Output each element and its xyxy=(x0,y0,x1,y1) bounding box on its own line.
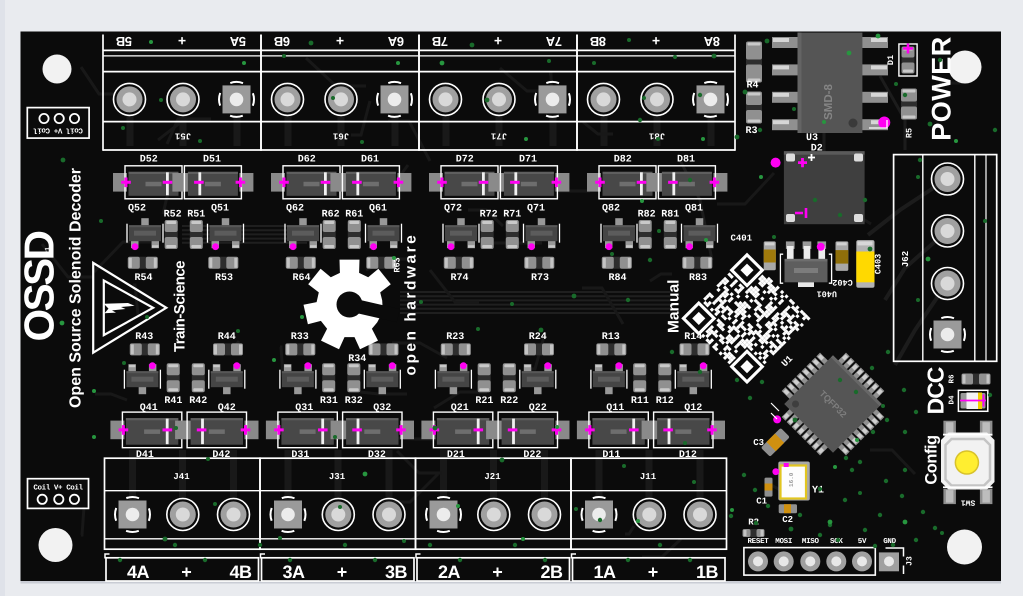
svg-text:J31: J31 xyxy=(329,472,346,482)
svg-text:Manual: Manual xyxy=(666,280,683,333)
svg-text:D82: D82 xyxy=(614,155,632,166)
svg-text:+: + xyxy=(178,33,186,49)
svg-text:R74: R74 xyxy=(450,273,468,284)
svg-text:+: + xyxy=(494,33,502,49)
svg-text:R6: R6 xyxy=(947,374,956,384)
svg-text:Q72: Q72 xyxy=(444,204,462,215)
svg-text:Open Source Solenoid Decoder: Open Source Solenoid Decoder xyxy=(68,168,85,408)
svg-text:Y1: Y1 xyxy=(812,486,824,497)
svg-text:R61: R61 xyxy=(345,210,363,221)
svg-text:1B: 1B xyxy=(696,562,719,582)
svg-text:16.0: 16.0 xyxy=(788,472,795,487)
svg-text:R72: R72 xyxy=(480,210,498,221)
svg-text:5A: 5A xyxy=(229,34,246,49)
svg-text:R24: R24 xyxy=(529,332,547,343)
svg-text:D31: D31 xyxy=(291,450,309,461)
svg-text:2B: 2B xyxy=(540,562,563,582)
svg-text:D4: D4 xyxy=(949,395,957,405)
svg-text:Coil V+ Coil: Coil V+ Coil xyxy=(33,126,83,135)
svg-text:5B: 5B xyxy=(116,34,132,49)
svg-text:R71: R71 xyxy=(503,210,521,221)
svg-text:J21: J21 xyxy=(484,472,501,482)
svg-text:6B: 6B xyxy=(274,34,290,49)
svg-text:Q62: Q62 xyxy=(286,204,304,215)
svg-text:OSSD: OSSD xyxy=(16,231,63,341)
svg-text:R42: R42 xyxy=(189,396,207,407)
svg-text:R52: R52 xyxy=(164,210,182,221)
svg-text:R31: R31 xyxy=(320,396,338,407)
svg-text:J11: J11 xyxy=(640,472,657,482)
svg-text:R5: R5 xyxy=(905,128,915,138)
svg-text:R11: R11 xyxy=(631,396,649,407)
svg-text:D21: D21 xyxy=(447,450,465,461)
svg-text:SW1: SW1 xyxy=(961,498,976,507)
svg-text:5V: 5V xyxy=(858,538,867,546)
svg-text:R81: R81 xyxy=(661,210,679,221)
svg-text:C1: C1 xyxy=(756,497,767,507)
svg-text:SMD-8: SMD-8 xyxy=(823,84,835,120)
svg-text:D2: D2 xyxy=(811,144,823,155)
svg-text:U401: U401 xyxy=(817,289,837,299)
svg-text:D61: D61 xyxy=(361,155,379,166)
svg-text:R64: R64 xyxy=(292,273,310,284)
svg-text:R21: R21 xyxy=(475,396,493,407)
svg-text:R53: R53 xyxy=(215,273,233,284)
svg-text:D51: D51 xyxy=(203,155,221,166)
svg-text:+: + xyxy=(652,33,660,49)
svg-text:D12: D12 xyxy=(679,450,697,461)
svg-text:J41: J41 xyxy=(173,472,190,482)
svg-text:D11: D11 xyxy=(602,450,620,461)
svg-text:R73: R73 xyxy=(531,273,549,284)
svg-text:C2: C2 xyxy=(782,515,793,525)
svg-text:U3: U3 xyxy=(806,133,818,144)
svg-text:MOSI: MOSI xyxy=(775,537,792,546)
svg-text:8B: 8B xyxy=(590,34,606,49)
svg-text:7B: 7B xyxy=(432,34,448,49)
svg-text:D22: D22 xyxy=(523,450,541,461)
svg-text:Q51: Q51 xyxy=(211,204,229,215)
svg-text:R4: R4 xyxy=(746,81,758,92)
svg-text:Train-Science: Train-Science xyxy=(172,261,189,352)
svg-text:3B: 3B xyxy=(385,562,408,582)
svg-text:D32: D32 xyxy=(368,450,386,461)
svg-text:+: + xyxy=(337,562,348,582)
svg-text:R62: R62 xyxy=(322,210,340,221)
svg-text:Q61: Q61 xyxy=(369,204,387,215)
svg-text:R13: R13 xyxy=(602,332,620,343)
svg-text:R41: R41 xyxy=(164,396,182,407)
svg-text:D52: D52 xyxy=(140,155,158,166)
svg-text:MISO: MISO xyxy=(802,537,820,546)
svg-text:4B: 4B xyxy=(229,562,252,582)
svg-text:R1: R1 xyxy=(45,247,53,255)
svg-text:D62: D62 xyxy=(298,155,316,166)
svg-text:C3: C3 xyxy=(753,438,764,448)
svg-text:R12: R12 xyxy=(656,396,674,407)
svg-text:2A: 2A xyxy=(438,562,461,582)
svg-text:Coil V+ Coil: Coil V+ Coil xyxy=(33,484,83,493)
svg-text:Config: Config xyxy=(923,435,941,484)
svg-text:C402: C402 xyxy=(832,277,852,287)
svg-text:+: + xyxy=(648,562,659,582)
svg-text:R83: R83 xyxy=(689,273,707,284)
svg-text:4A: 4A xyxy=(127,562,150,582)
svg-text:6A: 6A xyxy=(387,34,404,49)
svg-text:D1: D1 xyxy=(886,55,896,65)
svg-text:Q82: Q82 xyxy=(602,204,620,215)
svg-text:DCC: DCC xyxy=(923,367,949,414)
svg-text:R82: R82 xyxy=(638,210,656,221)
svg-text:J61: J61 xyxy=(332,131,349,141)
svg-text:R3: R3 xyxy=(745,126,757,137)
svg-text:1A: 1A xyxy=(593,562,616,582)
svg-text:J62: J62 xyxy=(901,251,911,267)
svg-text:D41: D41 xyxy=(136,450,154,461)
svg-text:C403: C403 xyxy=(874,254,884,274)
svg-text:D42: D42 xyxy=(212,450,230,461)
svg-text:J71: J71 xyxy=(490,131,507,141)
svg-text:7A: 7A xyxy=(545,34,562,49)
svg-text:R22: R22 xyxy=(500,396,518,407)
svg-text:+: + xyxy=(336,33,344,49)
svg-text:D72: D72 xyxy=(456,155,474,166)
svg-text:RESET: RESET xyxy=(747,537,769,546)
svg-text:C401: C401 xyxy=(730,234,752,244)
svg-text:J3: J3 xyxy=(906,556,915,566)
svg-text:R44: R44 xyxy=(218,332,236,343)
svg-text:R51: R51 xyxy=(187,210,205,221)
svg-text:R32: R32 xyxy=(345,396,363,407)
svg-text:8A: 8A xyxy=(703,34,720,49)
svg-text:J51: J51 xyxy=(174,131,191,141)
svg-text:R23: R23 xyxy=(446,332,464,343)
svg-text:3A: 3A xyxy=(282,562,305,582)
svg-text:D81: D81 xyxy=(677,155,695,166)
svg-text:D71: D71 xyxy=(519,155,537,166)
svg-text:Q52: Q52 xyxy=(128,204,146,215)
svg-text:R34: R34 xyxy=(348,354,366,365)
svg-text:Q81: Q81 xyxy=(685,204,703,215)
svg-text:Q71: Q71 xyxy=(527,204,545,215)
svg-text:R33: R33 xyxy=(291,332,309,343)
svg-text:+: + xyxy=(181,562,192,582)
svg-text:R54: R54 xyxy=(134,273,152,284)
svg-text:R84: R84 xyxy=(608,273,626,284)
svg-text:open hardware: open hardware xyxy=(403,233,420,376)
svg-text:R43: R43 xyxy=(135,332,153,343)
svg-text:+: + xyxy=(492,562,503,582)
